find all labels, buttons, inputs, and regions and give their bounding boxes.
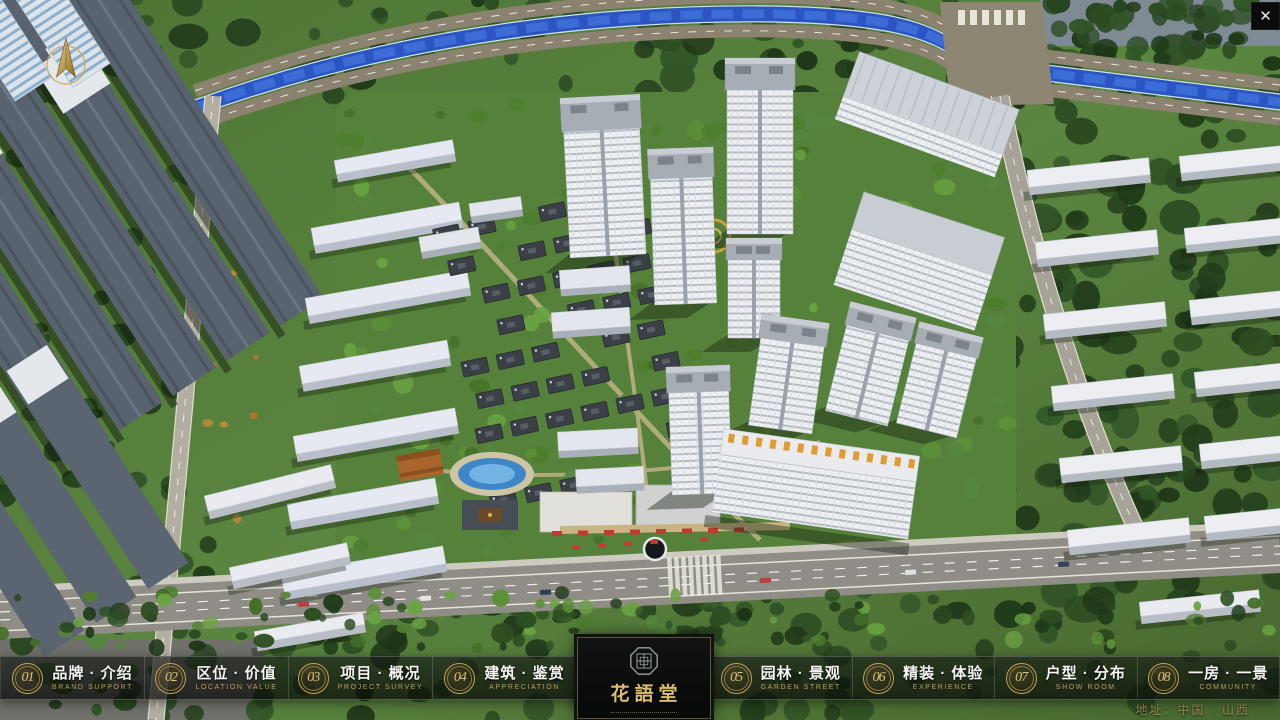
nav-item-title: 品牌 · 介绍 [52,666,132,681]
nav-item-number: 03 [307,670,319,686]
nav-group-left: 01品牌 · 介绍BRAND SUPPORT02区位 · 价值LOCATION … [0,657,577,699]
nav-item-number: 01 [22,670,34,686]
nav-item-medallion: 08 [1148,663,1179,694]
nav-item-number: 02 [165,670,177,686]
nav-item-02[interactable]: 02区位 · 价值LOCATION VALUE [145,657,289,699]
nav-item-medallion: 05 [721,663,752,694]
nav-item-title: 户型 · 分布 [1046,666,1126,681]
nav-item-subtitle: COMMUNITY [1199,684,1257,691]
nav-item-06[interactable]: 06精装 · 体验EXPERIENCE [853,657,996,699]
nav-item-04[interactable]: 04建筑 · 鉴赏APPRECIATION [433,657,577,699]
nav-item-subtitle: GARDEN STREET [761,684,841,691]
nav-item-number: 08 [1158,670,1170,686]
nav-item-title: 园林 · 景观 [761,666,841,681]
nav-item-medallion: 01 [12,663,43,694]
nav-item-subtitle: PROJECT SURVEY [338,684,424,691]
nav-item-title: 项目 · 概况 [340,666,420,681]
nav-item-medallion: 02 [155,663,186,694]
nav-item-title: 一房 · 一景 [1188,666,1268,681]
nav-item-subtitle: EXPERIENCE [913,684,974,691]
close-button[interactable]: ✕ [1251,2,1280,30]
brand-logo-panel[interactable]: 花語堂 [577,637,711,719]
nav-item-03[interactable]: 03项目 · 概况PROJECT SURVEY [289,657,433,699]
nav-item-subtitle: BRAND SUPPORT [52,684,133,691]
brand-logo-text: 花語堂 [605,679,682,706]
compass-north-indicator [40,34,92,92]
nav-item-medallion: 06 [863,663,894,694]
nav-item-number: 04 [454,670,466,686]
nav-item-medallion: 07 [1006,663,1037,694]
nav-item-title: 精装 · 体验 [903,666,983,681]
nav-item-number: 07 [1015,670,1027,686]
nav-item-number: 05 [730,670,742,686]
nav-item-01[interactable]: 01品牌 · 介绍BRAND SUPPORT [0,657,145,699]
sales-presentation-screen: ✕ 01品牌 · 介绍BRAND SUPPORT02区位 · 价值LOCATIO… [0,0,1280,720]
brand-seal-icon [628,645,660,677]
nav-item-subtitle: LOCATION VALUE [195,684,277,691]
nav-item-number: 06 [873,670,885,686]
address-text: 地址：中国 · 山西 [1135,701,1250,718]
nav-item-medallion: 04 [444,663,475,694]
nav-item-05[interactable]: 05园林 · 景观GARDEN STREET [709,657,853,699]
site-aerial-map[interactable] [0,0,1280,720]
nav-item-subtitle: SHOW ROOM [1056,684,1116,691]
nav-item-subtitle: APPRECIATION [489,684,560,691]
nav-item-08[interactable]: 08一房 · 一景COMMUNITY [1138,657,1280,699]
nav-item-title: 区位 · 价值 [196,666,276,681]
brand-tagline [611,709,677,713]
nav-item-medallion: 03 [298,663,329,694]
nav-item-07[interactable]: 07户型 · 分布SHOW ROOM [995,657,1138,699]
nav-group-right: 05园林 · 景观GARDEN STREET06精装 · 体验EXPERIENC… [709,657,1280,699]
nav-item-title: 建筑 · 鉴赏 [484,666,564,681]
